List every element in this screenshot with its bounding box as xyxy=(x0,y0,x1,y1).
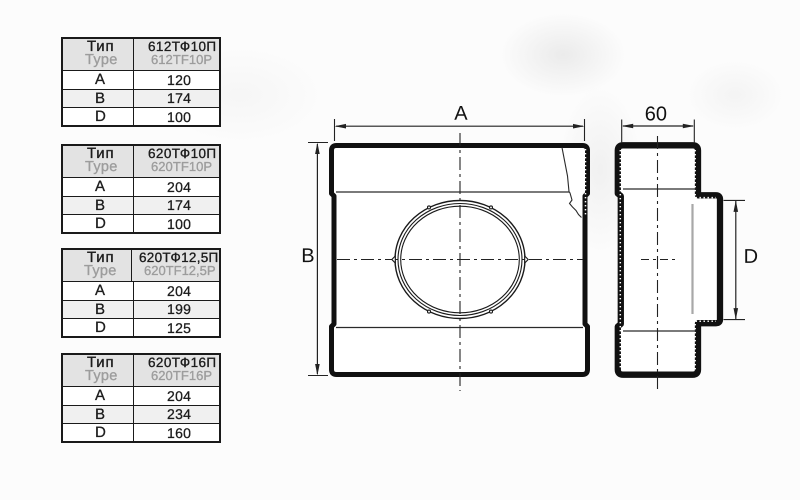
svg-text:A: A xyxy=(454,103,468,125)
svg-text:B: B xyxy=(301,245,314,267)
svg-text:60: 60 xyxy=(645,103,667,125)
svg-text:D: D xyxy=(744,246,758,268)
